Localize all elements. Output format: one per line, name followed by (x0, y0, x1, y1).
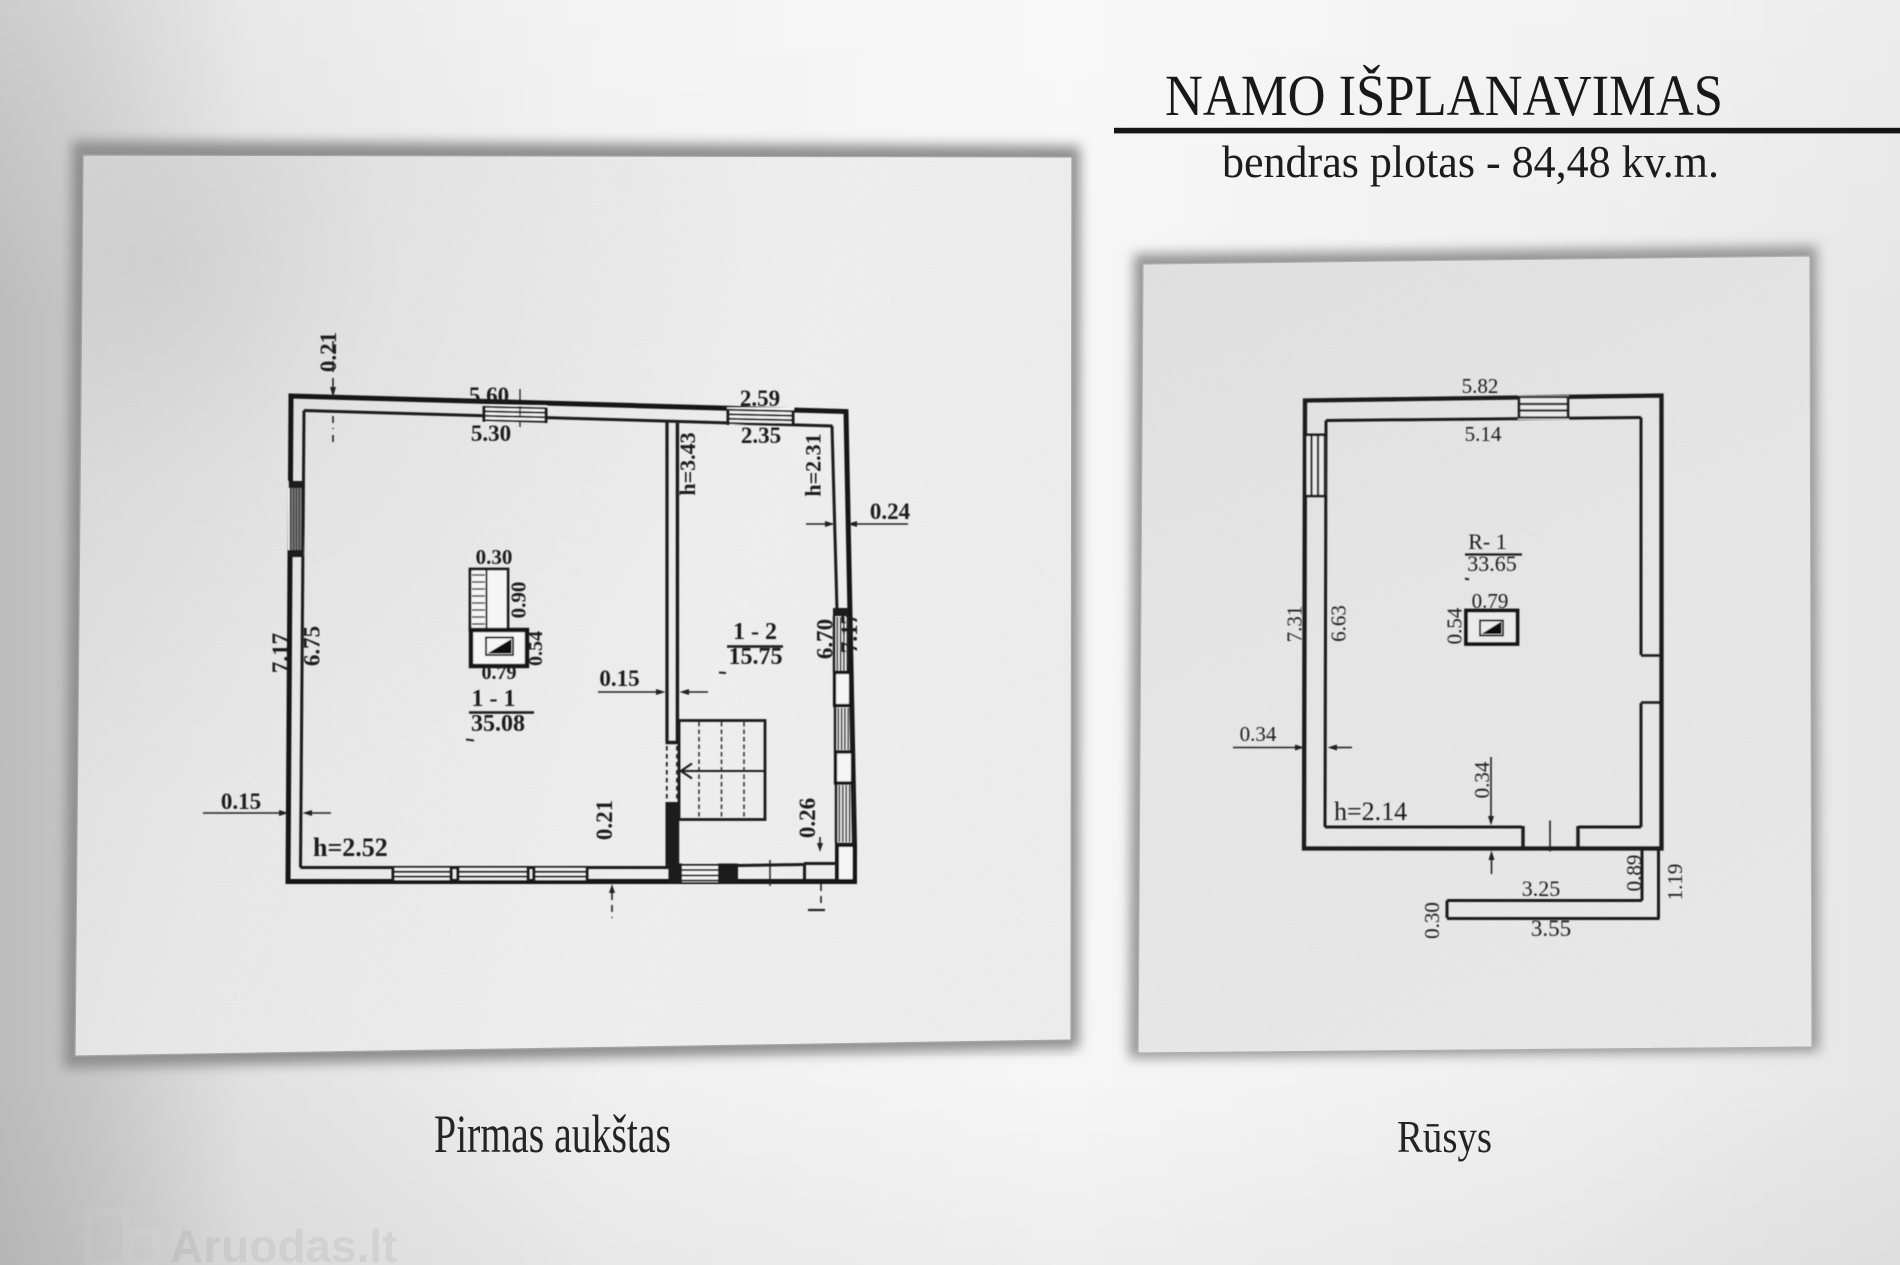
svg-text:0.21: 0.21 (592, 800, 617, 840)
svg-text:h=2.52: h=2.52 (313, 833, 388, 862)
svg-text:0.24: 0.24 (870, 499, 911, 524)
svg-text:0.89: 0.89 (1622, 855, 1646, 892)
svg-text:35.08: 35.08 (471, 711, 525, 737)
svg-text:7.17: 7.17 (837, 613, 862, 653)
svg-text:7.17: 7.17 (268, 633, 293, 673)
svg-text:0.90: 0.90 (507, 582, 531, 619)
svg-text:5.60: 5.60 (469, 383, 509, 408)
svg-text:0.34: 0.34 (1240, 722, 1277, 746)
svg-text:5.14: 5.14 (1465, 422, 1502, 446)
svg-text:Pirmas aukštas: Pirmas aukštas (434, 1104, 671, 1164)
svg-text:2.59: 2.59 (740, 386, 780, 411)
svg-text:1.19: 1.19 (1663, 864, 1687, 901)
svg-text:2.35: 2.35 (741, 423, 781, 448)
svg-text:h=2.14: h=2.14 (1334, 797, 1407, 826)
svg-text:0.54: 0.54 (1443, 607, 1467, 644)
svg-text:h=2.31: h=2.31 (801, 433, 826, 496)
svg-text:5.30: 5.30 (471, 421, 511, 446)
svg-text:3.25: 3.25 (1522, 876, 1561, 901)
svg-text:0.30: 0.30 (476, 545, 513, 569)
svg-text:6.75: 6.75 (300, 626, 325, 666)
svg-text:7.31: 7.31 (1283, 606, 1307, 643)
svg-text:0.79: 0.79 (482, 662, 517, 684)
svg-text:Aruodas.lt: Aruodas.lt (170, 1220, 397, 1265)
svg-text:0.21: 0.21 (316, 332, 341, 372)
svg-text:0.54: 0.54 (525, 631, 547, 666)
svg-text:h=3.43: h=3.43 (675, 432, 700, 495)
svg-text:NAMO IŠPLANAVIMAS: NAMO IŠPLANAVIMAS (1165, 63, 1723, 128)
svg-text:6.63: 6.63 (1327, 605, 1351, 642)
svg-text:3.55: 3.55 (1531, 916, 1571, 941)
svg-text:bendras plotas - 84,48 kv.m.: bendras plotas - 84,48 kv.m. (1222, 137, 1719, 187)
svg-text:Rūsys: Rūsys (1397, 1111, 1492, 1162)
svg-text:6.70: 6.70 (813, 619, 838, 659)
svg-text:1 - 1: 1 - 1 (472, 686, 516, 712)
svg-text:5.82: 5.82 (1462, 374, 1499, 398)
svg-text:0.15: 0.15 (221, 789, 261, 814)
svg-text:0.30: 0.30 (1420, 902, 1444, 939)
svg-text:1 - 2: 1 - 2 (733, 619, 777, 645)
svg-text:0.15: 0.15 (599, 666, 639, 691)
svg-text:15.75: 15.75 (729, 644, 783, 670)
svg-text:33.65: 33.65 (1467, 551, 1517, 576)
svg-text:0.26: 0.26 (795, 798, 820, 838)
